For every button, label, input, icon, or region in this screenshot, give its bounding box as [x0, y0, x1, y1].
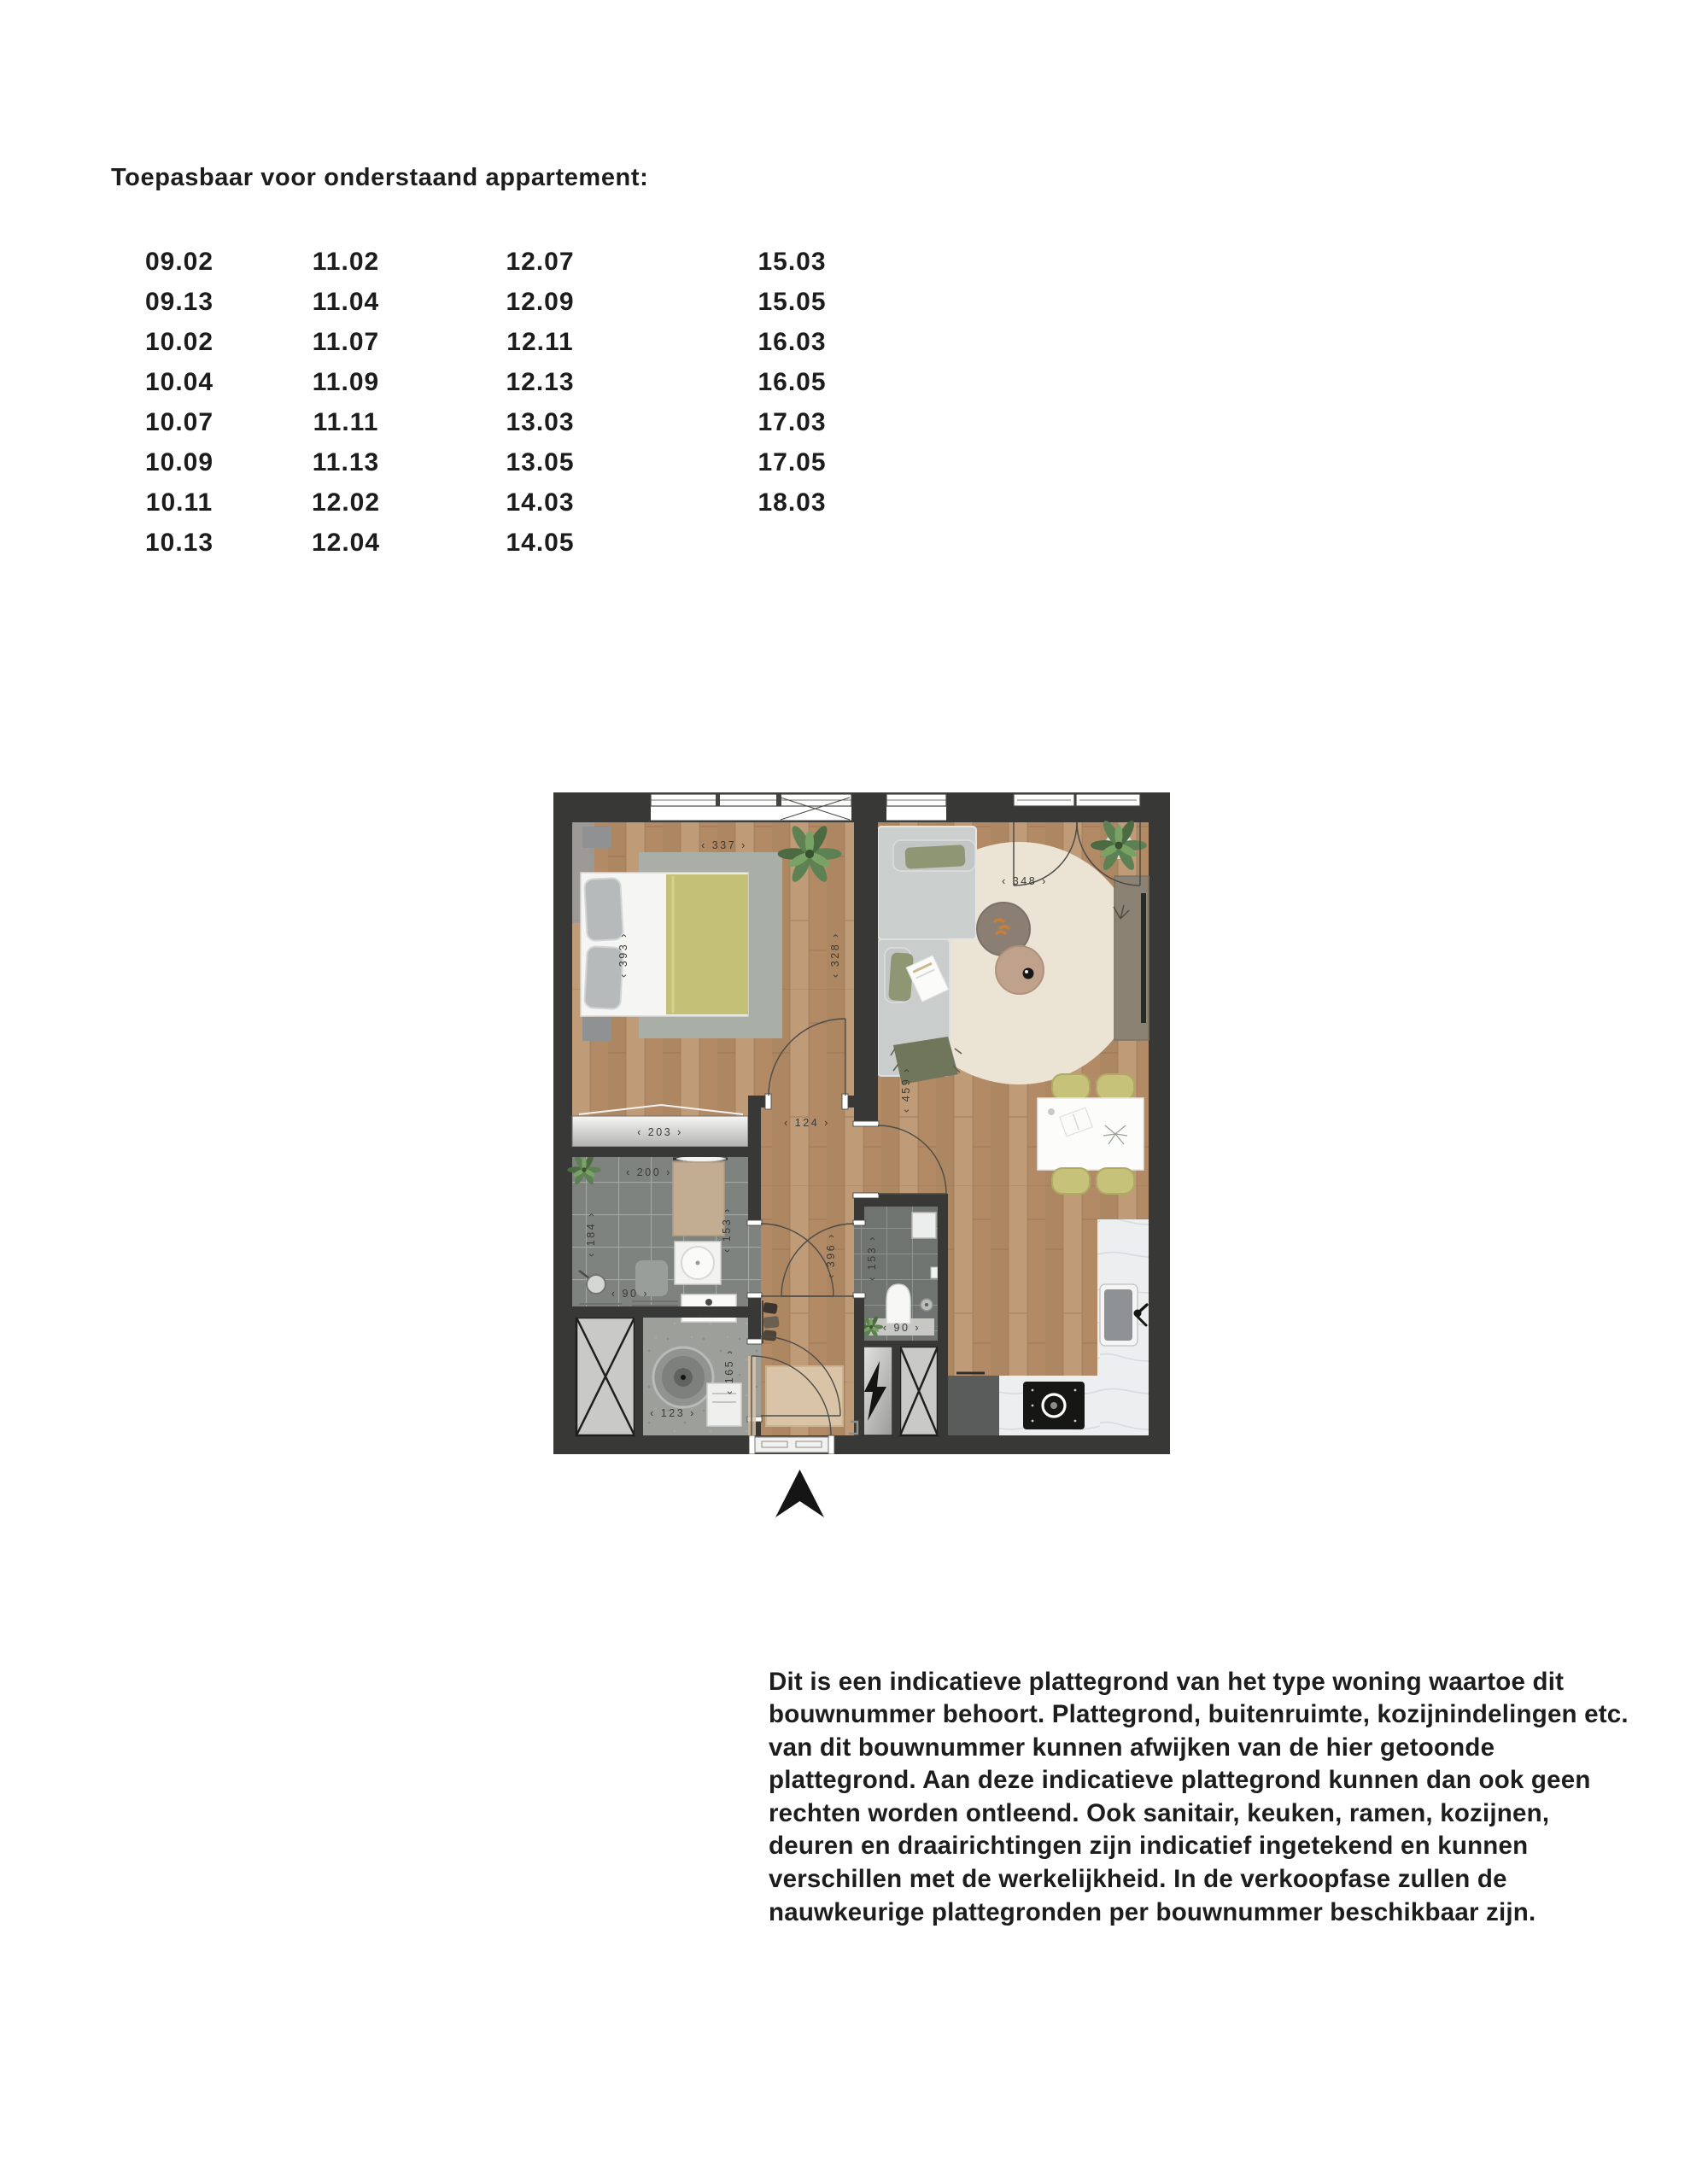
brochure-page: Toepasbaar voor onderstaand appartement:… [0, 0, 1708, 2180]
apartment-number: 12.11 [444, 322, 636, 362]
apartment-column-2: 11.0211.0411.0711.0911.1111.1312.0212.04 [248, 242, 444, 563]
apartment-column-4: 15.0315.0516.0316.0517.0317.0518.03 [636, 242, 948, 563]
apartment-number: 15.05 [636, 282, 948, 322]
dining-chair [1097, 1074, 1134, 1100]
dining-chair [1097, 1168, 1134, 1194]
dim-living-depth: ‹ 459 › [900, 1067, 912, 1113]
dim-living-width: ‹ 348 › [1002, 875, 1048, 887]
tv [1141, 893, 1146, 1023]
dim-bedroom-depth-right: ‹ 328 › [829, 932, 841, 978]
apartment-number: 10.02 [111, 322, 248, 362]
apartment-number: 11.09 [248, 362, 444, 402]
apartment-number: 14.05 [444, 523, 636, 563]
kitchen-cabinet-dark [946, 1376, 999, 1435]
bath-mat [673, 1162, 724, 1236]
apartment-number: 14.03 [444, 482, 636, 523]
cistern [912, 1213, 936, 1238]
apartment-number: 09.02 [111, 242, 248, 282]
apartment-number: 16.05 [636, 362, 948, 402]
north-arrow-icon [775, 1470, 824, 1517]
roll-holder [931, 1267, 938, 1278]
apartment-number: 16.03 [636, 322, 948, 362]
floorplan-image: ‹ 337 › ‹ 393 › ‹ 328 › ‹ 203 › ‹ 200 › … [553, 792, 1170, 1454]
apartment-number: 11.07 [248, 322, 444, 362]
entry-mat [766, 1366, 843, 1426]
apartment-number: 12.09 [444, 282, 636, 322]
dim-laundry-depth: ‹ 165 › [723, 1348, 735, 1394]
apartment-number: 12.07 [444, 242, 636, 282]
apartment-number: 10.09 [111, 442, 248, 482]
shower-icon [587, 1275, 605, 1294]
apartment-number: 11.04 [248, 282, 444, 322]
apartment-column-1: 09.0209.1310.0210.0410.0710.0910.1110.13 [111, 242, 248, 563]
apartment-number: 09.13 [111, 282, 248, 322]
dining-chair [1052, 1074, 1090, 1100]
dim-wardrobe-width: ‹ 203 › [637, 1126, 683, 1138]
dim-bedroom-width: ‹ 337 › [701, 839, 747, 851]
dim-bedroom-depth: ‹ 393 › [617, 932, 629, 978]
coffee-table-small [996, 946, 1044, 994]
apartment-number: 17.03 [636, 402, 948, 442]
apartment-number: 10.11 [111, 482, 248, 523]
bed-duvet [666, 874, 748, 1014]
windows [651, 794, 946, 821]
dim-laundry-width: ‹ 123 › [650, 1407, 696, 1419]
cup [1023, 968, 1034, 979]
apartment-number: 12.13 [444, 362, 636, 402]
apartment-number: 11.02 [248, 242, 444, 282]
apartment-number: 10.07 [111, 402, 248, 442]
apartment-number: 12.04 [248, 523, 444, 563]
dining-table [1038, 1098, 1144, 1170]
dim-shower-width: ‹ 90 › [611, 1288, 649, 1300]
apartment-number: 10.04 [111, 362, 248, 402]
apartment-number: 11.11 [248, 402, 444, 442]
dim-wc-width: ‹ 90 › [883, 1322, 921, 1334]
dim-hall-depth: ‹ 396 › [825, 1232, 837, 1278]
dim-laundry-counter: ‹ 100 › [686, 1307, 732, 1319]
dim-bathroom-depth: ‹ 184 › [585, 1211, 597, 1257]
apartment-number-table: 09.0209.1310.0210.0410.0710.0910.1110.13… [111, 242, 948, 563]
apartment-number: 13.03 [444, 402, 636, 442]
apartment-number: 18.03 [636, 482, 948, 523]
dim-hall-width: ‹ 124 › [784, 1117, 830, 1129]
apartment-number: 13.05 [444, 442, 636, 482]
disclaimer-text: Dit is een indicatieve plattegrond van h… [769, 1666, 1635, 1930]
nightstand [582, 1017, 611, 1041]
apartment-number: 15.03 [636, 242, 948, 282]
apartment-column-3: 12.0712.0912.1112.1313.0313.0514.0314.05 [444, 242, 636, 563]
dim-wc-depth: ‹ 153 › [866, 1235, 878, 1281]
apartment-number: 11.13 [248, 442, 444, 482]
page-title: Toepasbaar voor onderstaand appartement: [111, 164, 648, 192]
apartment-number: 10.13 [111, 523, 248, 563]
dim-bathroom-width: ‹ 200 › [626, 1166, 672, 1178]
sofa-pillow [888, 952, 914, 1002]
toilet [886, 1284, 910, 1324]
dining-chair [1052, 1168, 1090, 1194]
dim-bathroom-depth-right: ‹ 153 › [721, 1207, 733, 1253]
nightstand [582, 827, 611, 848]
apartment-number: 17.05 [636, 442, 948, 482]
apartment-number: 12.02 [248, 482, 444, 523]
sofa-pillow [904, 845, 965, 869]
